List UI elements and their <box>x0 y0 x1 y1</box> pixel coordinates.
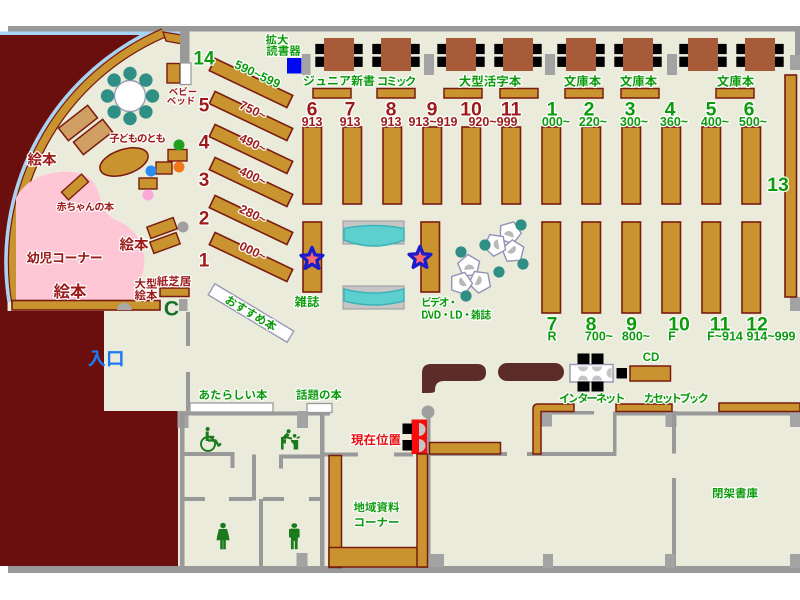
svg-text:13: 13 <box>767 174 789 196</box>
svg-text:4: 4 <box>199 133 210 154</box>
svg-text:R: R <box>547 329 556 343</box>
svg-text:400~: 400~ <box>701 115 729 129</box>
svg-text:11: 11 <box>501 98 522 120</box>
svg-text:700~: 700~ <box>585 329 613 343</box>
svg-text:F~914: F~914 <box>707 329 743 343</box>
svg-text:913: 913 <box>302 115 323 129</box>
svg-text:220~: 220~ <box>579 115 607 129</box>
svg-text:CD: CD <box>643 352 660 364</box>
svg-text:C: C <box>164 297 179 320</box>
svg-text:913: 913 <box>381 115 402 129</box>
svg-text:3: 3 <box>199 170 210 191</box>
svg-text:500~: 500~ <box>739 115 767 129</box>
svg-text:913~919: 913~919 <box>408 115 457 129</box>
svg-text:000~: 000~ <box>542 115 570 129</box>
svg-text:800~: 800~ <box>622 329 650 343</box>
svg-text:14: 14 <box>193 49 215 70</box>
svg-text:300~: 300~ <box>620 115 648 129</box>
svg-text:360~: 360~ <box>660 115 688 129</box>
svg-text:F: F <box>668 329 676 343</box>
svg-text:913: 913 <box>340 115 361 129</box>
svg-text:2: 2 <box>199 209 210 230</box>
svg-text:1: 1 <box>199 251 210 272</box>
svg-text:5: 5 <box>199 96 210 117</box>
svg-text:914~999: 914~999 <box>746 329 795 343</box>
